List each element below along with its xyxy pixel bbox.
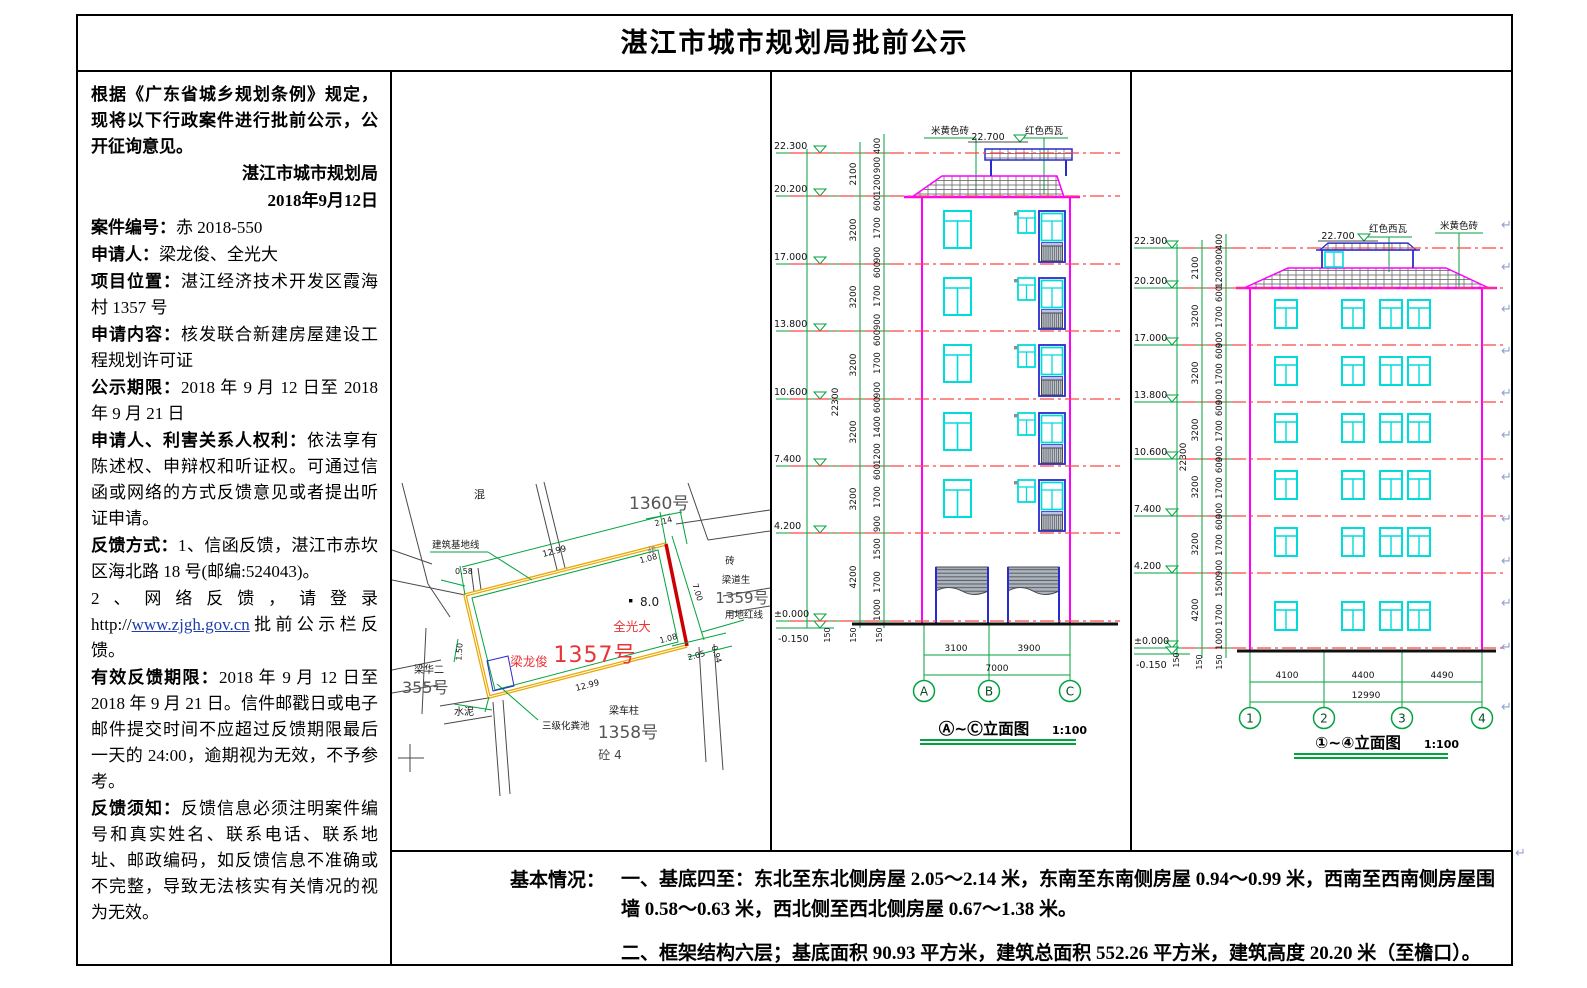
field-period: 公示期限：2018 年 9 月 12 日至 2018 年 9 月 21 日 <box>91 375 378 427</box>
axis-label: 3 <box>1398 712 1406 726</box>
field-feedback-method: 反馈方式：1、信函反馈，湛江市赤坎区海北路 18 号(邮编:524043)。 <box>91 533 378 585</box>
paragraph-mark: ↵ <box>1501 700 1512 715</box>
site-plan-drawing: 混 1360号 建筑基地线 12.99 2.14 1.08 0.58 1.50 … <box>392 72 770 848</box>
svg-text:1200: 1200 <box>873 174 883 196</box>
basic-info-panel: 基本情况： 一、基底四至：东北至东北侧房屋 2.05～2.14 米，东南至东南侧… <box>392 850 1511 964</box>
svg-text:1700: 1700 <box>1215 420 1225 442</box>
svg-text:1700: 1700 <box>1215 306 1225 328</box>
svg-text:3200: 3200 <box>1191 304 1201 327</box>
field-feedback-notes: 反馈须知：反馈信息必须注明案件编号和真实姓名、联系电话、联系地址、邮政编码，如反… <box>91 796 378 926</box>
level-label: -0.150 <box>778 634 809 645</box>
level-label: 7.400 <box>1134 504 1161 515</box>
svg-text:4200: 4200 <box>849 565 859 588</box>
material-tile: 红色西瓦 <box>1025 125 1064 137</box>
level-label: ±0.000 <box>774 609 809 620</box>
axis-label: 2 <box>1320 712 1328 726</box>
svg-text:1700: 1700 <box>1215 363 1225 385</box>
paragraph-mark: ↵ <box>1501 428 1512 443</box>
svg-text:150: 150 <box>1195 654 1204 669</box>
dim-right: 7.00 <box>690 582 704 602</box>
elev1-axes: A B C <box>914 681 1081 702</box>
axis-label: A <box>920 685 929 699</box>
svg-text:1200: 1200 <box>1215 266 1225 288</box>
field-valid-period: 有效反馈期限：2018 年 9 月 12 日至 2018 年 9 月 21 日。… <box>91 665 378 795</box>
notice-text-panel: 根据《广东省城乡规划条例》规定，现将以下行政案件进行批前公示，公开征询意见。 湛… <box>78 72 392 964</box>
svg-text:900: 900 <box>873 157 883 173</box>
svg-text:600: 600 <box>1215 343 1225 359</box>
paragraph-mark: ↵ <box>1501 344 1512 359</box>
svg-text:3200: 3200 <box>849 285 859 308</box>
label-1360: 1360号 <box>629 494 689 514</box>
svg-text:2100: 2100 <box>849 162 859 185</box>
elevation-14-panel: 22.300 20.200 17.000 13.800 10.600 7.400… <box>1132 72 1513 850</box>
svg-text:1000: 1000 <box>1215 628 1225 650</box>
svg-text:1500: 1500 <box>1215 575 1225 597</box>
svg-text:3200: 3200 <box>849 420 859 443</box>
material-tile: 红色西瓦 <box>1369 223 1408 235</box>
level-label: 22.300 <box>774 141 807 152</box>
svg-text:1700: 1700 <box>873 217 883 239</box>
svg-text:1500: 1500 <box>873 538 883 560</box>
main-roof <box>912 176 1064 197</box>
svg-text:600: 600 <box>873 464 883 480</box>
svg-text:1700: 1700 <box>1215 534 1225 556</box>
elevation-14-drawing: 22.300 20.200 17.000 13.800 10.600 7.400… <box>1132 72 1511 848</box>
label-lianghuaer: 梁华二 <box>414 663 444 676</box>
dim-w1: 0.58 <box>455 567 473 576</box>
field-case-no: 案件编号：赤 2018-550 <box>91 215 378 241</box>
svg-text:900: 900 <box>873 247 883 263</box>
svg-text:150: 150 <box>1215 654 1224 669</box>
paragraph-mark: ↵ <box>1501 302 1512 317</box>
issuing-org: 湛江市城市规划局 <box>91 161 378 187</box>
label-quanguangda: 全光大 <box>613 619 651 634</box>
label-baseline: 建筑基地线 <box>432 539 480 551</box>
level-label: -0.150 <box>1136 660 1167 671</box>
drawing-title: Ⓐ~Ⓒ立面图 <box>939 719 1030 738</box>
level-label: 13.800 <box>1134 390 1167 401</box>
svg-text:600: 600 <box>1215 514 1225 530</box>
level-label: 10.600 <box>1134 447 1167 458</box>
label-1358: 1358号 <box>598 723 658 743</box>
elev1-title: Ⓐ~Ⓒ立面图 1:100 <box>920 719 1087 744</box>
spot-elevation-dot <box>629 599 632 602</box>
svg-text:3200: 3200 <box>1191 532 1201 555</box>
svg-text:1700: 1700 <box>873 352 883 374</box>
basic-info-items: 一、基底四至：东北至东北侧房屋 2.05～2.14 米，东南至东南侧房屋 0.9… <box>621 865 1501 964</box>
elevation-ac-drawing: 22.300 20.200 17.000 13.800 10.600 7.400… <box>772 72 1130 848</box>
intro-paragraph: 根据《广东省城乡规划条例》规定，现将以下行政案件进行批前公示，公开征询意见。 <box>91 82 378 160</box>
notice-page: 湛江市城市规划局批前公示 根据《广东省城乡规划条例》规定，现将以下行政案件进行批… <box>0 0 1587 988</box>
spot-elevation: 8.0 <box>640 595 659 609</box>
svg-text:600: 600 <box>1215 400 1225 416</box>
field-content: 申请内容：核发联合新建房屋建设工程规划许可证 <box>91 322 378 374</box>
label-hun: 混 <box>474 488 485 501</box>
svg-text:3200: 3200 <box>849 487 859 510</box>
label-redline: 用地红线 <box>725 609 764 621</box>
site-plan-panel: 混 1360号 建筑基地线 12.99 2.14 1.08 0.58 1.50 … <box>392 72 772 850</box>
level-label: 22.300 <box>1134 236 1167 247</box>
field-rights: 申请人、利害关系人权利：依法享有陈述权、申辩权和听证权。可通过信函或网络的方式反… <box>91 428 378 532</box>
svg-text:3200: 3200 <box>1191 475 1201 498</box>
span-dim: 3100 <box>945 644 968 654</box>
paragraph-mark: ↵ <box>1501 260 1512 275</box>
dim-s1: 2.05 <box>687 649 706 662</box>
level-label: 17.000 <box>774 252 807 263</box>
dim-left: 1.50 <box>454 643 464 661</box>
label-shuini: 水泥 <box>454 705 474 718</box>
level-label: 4.200 <box>1134 561 1161 572</box>
paragraph-mark: ↵ <box>1501 386 1512 401</box>
label-liangchezhu: 梁车柱 <box>609 704 639 717</box>
drawing-scale: 1:100 <box>1052 724 1087 737</box>
svg-text:3200: 3200 <box>849 353 859 376</box>
paragraph-mark: ↵ <box>1501 470 1512 485</box>
level-label: 4.200 <box>774 521 801 532</box>
span-total: 7000 <box>986 664 1009 674</box>
material-brick: 米黄色砖 <box>1440 220 1479 232</box>
ridge-level: 22.700 <box>1321 231 1354 242</box>
notice-document: 湛江市城市规划局批前公示 根据《广东省城乡规划条例》规定，现将以下行政案件进行批… <box>76 14 1513 966</box>
label-zhuan-e: 砖 <box>725 555 735 567</box>
svg-text:900: 900 <box>1215 249 1225 265</box>
svg-text:1200: 1200 <box>873 443 883 465</box>
paragraph-mark: ↵ <box>1501 640 1512 655</box>
total-dim: 22300 <box>831 387 841 416</box>
field-location: 项目位置：湛江经济技术开发区霞海村 1357 号 <box>91 269 378 321</box>
level-label: 13.800 <box>774 319 807 330</box>
svg-text:150: 150 <box>1172 652 1181 667</box>
svg-text:3200: 3200 <box>1191 418 1201 441</box>
elev2-building <box>1236 243 1497 651</box>
paragraph-mark: ↵ <box>1501 554 1512 569</box>
span-dim: 3900 <box>1018 644 1041 654</box>
level-label: 20.200 <box>774 184 807 195</box>
level-label: ±0.000 <box>1134 636 1169 647</box>
label-lianglongjun: 梁龙俊 <box>510 654 548 669</box>
dim-s2: 0.94 <box>709 644 723 664</box>
svg-text:400: 400 <box>873 138 883 154</box>
elev2-title: ①~④立面图 1:100 <box>1294 733 1459 758</box>
elev2-axes: 1 2 3 4 <box>1240 708 1493 729</box>
svg-text:900: 900 <box>1215 560 1225 576</box>
svg-text:1700: 1700 <box>873 486 883 508</box>
svg-text:600: 600 <box>873 397 883 413</box>
svg-text:600: 600 <box>873 262 883 278</box>
label-1359: 1359号 <box>715 589 768 607</box>
axis-label: B <box>985 685 993 699</box>
svg-text:150: 150 <box>849 627 858 642</box>
penthouse-roof <box>985 149 1072 160</box>
building-walls <box>1250 288 1482 651</box>
svg-text:1000: 1000 <box>873 599 883 621</box>
svg-text:600: 600 <box>873 330 883 346</box>
paragraph-mark: ↵ <box>1515 846 1526 861</box>
dim-bottom: 12.99 <box>574 678 600 694</box>
basic-item-boundaries: 一、基底四至：东北至东北侧房屋 2.05～2.14 米，东南至东南侧房屋 0.9… <box>621 865 1501 925</box>
axis-label: C <box>1066 685 1074 699</box>
feedback-link[interactable]: www.zjgh.gov.cn <box>132 615 250 634</box>
paragraph-mark: ↵ <box>1501 218 1512 233</box>
field-web-feedback: 2、网络反馈，请登录 http://www.zjgh.gov.cn批前公示栏反馈… <box>91 586 378 664</box>
svg-text:3200: 3200 <box>1191 361 1201 384</box>
svg-text:1700: 1700 <box>873 285 883 307</box>
level-label: 10.600 <box>774 387 807 398</box>
elev1-building <box>852 149 1118 624</box>
ridge-level: 22.700 <box>971 132 1004 143</box>
basic-info-label: 基本情况： <box>510 865 605 964</box>
span-dim: 4490 <box>1431 671 1454 681</box>
svg-text:3200: 3200 <box>849 218 859 241</box>
svg-text:900: 900 <box>873 382 883 398</box>
label-1357: 1357号 <box>554 643 637 668</box>
svg-text:1700: 1700 <box>1215 477 1225 499</box>
svg-text:400: 400 <box>1215 234 1225 250</box>
svg-text:600: 600 <box>873 195 883 211</box>
label-zhuan-ne: 砖 <box>648 545 656 555</box>
paragraph-mark: ↵ <box>1501 512 1512 527</box>
label-355: 355号 <box>402 678 449 697</box>
field-applicant: 申请人：梁龙俊、全光大 <box>91 242 378 268</box>
svg-text:1400: 1400 <box>873 416 883 438</box>
svg-text:600: 600 <box>1215 286 1225 302</box>
level-label: 7.400 <box>774 454 801 465</box>
svg-text:600: 600 <box>1215 457 1225 473</box>
issue-date: 2018年9月12日 <box>91 188 378 214</box>
svg-text:150: 150 <box>875 627 884 642</box>
page-title: 湛江市城市规划局批前公示 <box>78 16 1511 72</box>
svg-text:1700: 1700 <box>873 571 883 593</box>
span-total: 12990 <box>1352 691 1381 701</box>
svg-text:4200: 4200 <box>1191 598 1201 621</box>
drawing-scale: 1:100 <box>1424 738 1459 751</box>
span-dim: 4100 <box>1276 671 1299 681</box>
main-roof <box>1244 268 1489 288</box>
level-label: 20.200 <box>1134 276 1167 287</box>
total-dim: 22300 <box>1179 442 1189 471</box>
drawing-title: ①~④立面图 <box>1315 733 1401 752</box>
material-brick: 米黄色砖 <box>931 125 970 137</box>
svg-text:2100: 2100 <box>1191 256 1201 279</box>
penthouse-roof <box>1320 243 1416 250</box>
svg-text:1700: 1700 <box>1215 604 1225 626</box>
paragraph-mark: ↵ <box>1501 596 1512 611</box>
svg-text:150: 150 <box>823 627 832 642</box>
label-tong4: 砼 4 <box>598 748 621 762</box>
axis-label: 4 <box>1478 712 1486 726</box>
basic-item-structure: 二、框架结构六层；基底面积 90.93 平方米，建筑总面积 552.26 平方米… <box>621 939 1501 969</box>
svg-text:900: 900 <box>873 516 883 532</box>
level-label: 17.000 <box>1134 333 1167 344</box>
span-dim: 4400 <box>1352 671 1375 681</box>
label-liangdaosheng: 梁道生 <box>722 574 751 586</box>
svg-text:900: 900 <box>873 314 883 330</box>
elevation-ac-panel: 22.300 20.200 17.000 13.800 10.600 7.400… <box>772 72 1132 850</box>
label-septic: 三级化粪池 <box>542 720 590 732</box>
axis-label: 1 <box>1246 712 1254 726</box>
